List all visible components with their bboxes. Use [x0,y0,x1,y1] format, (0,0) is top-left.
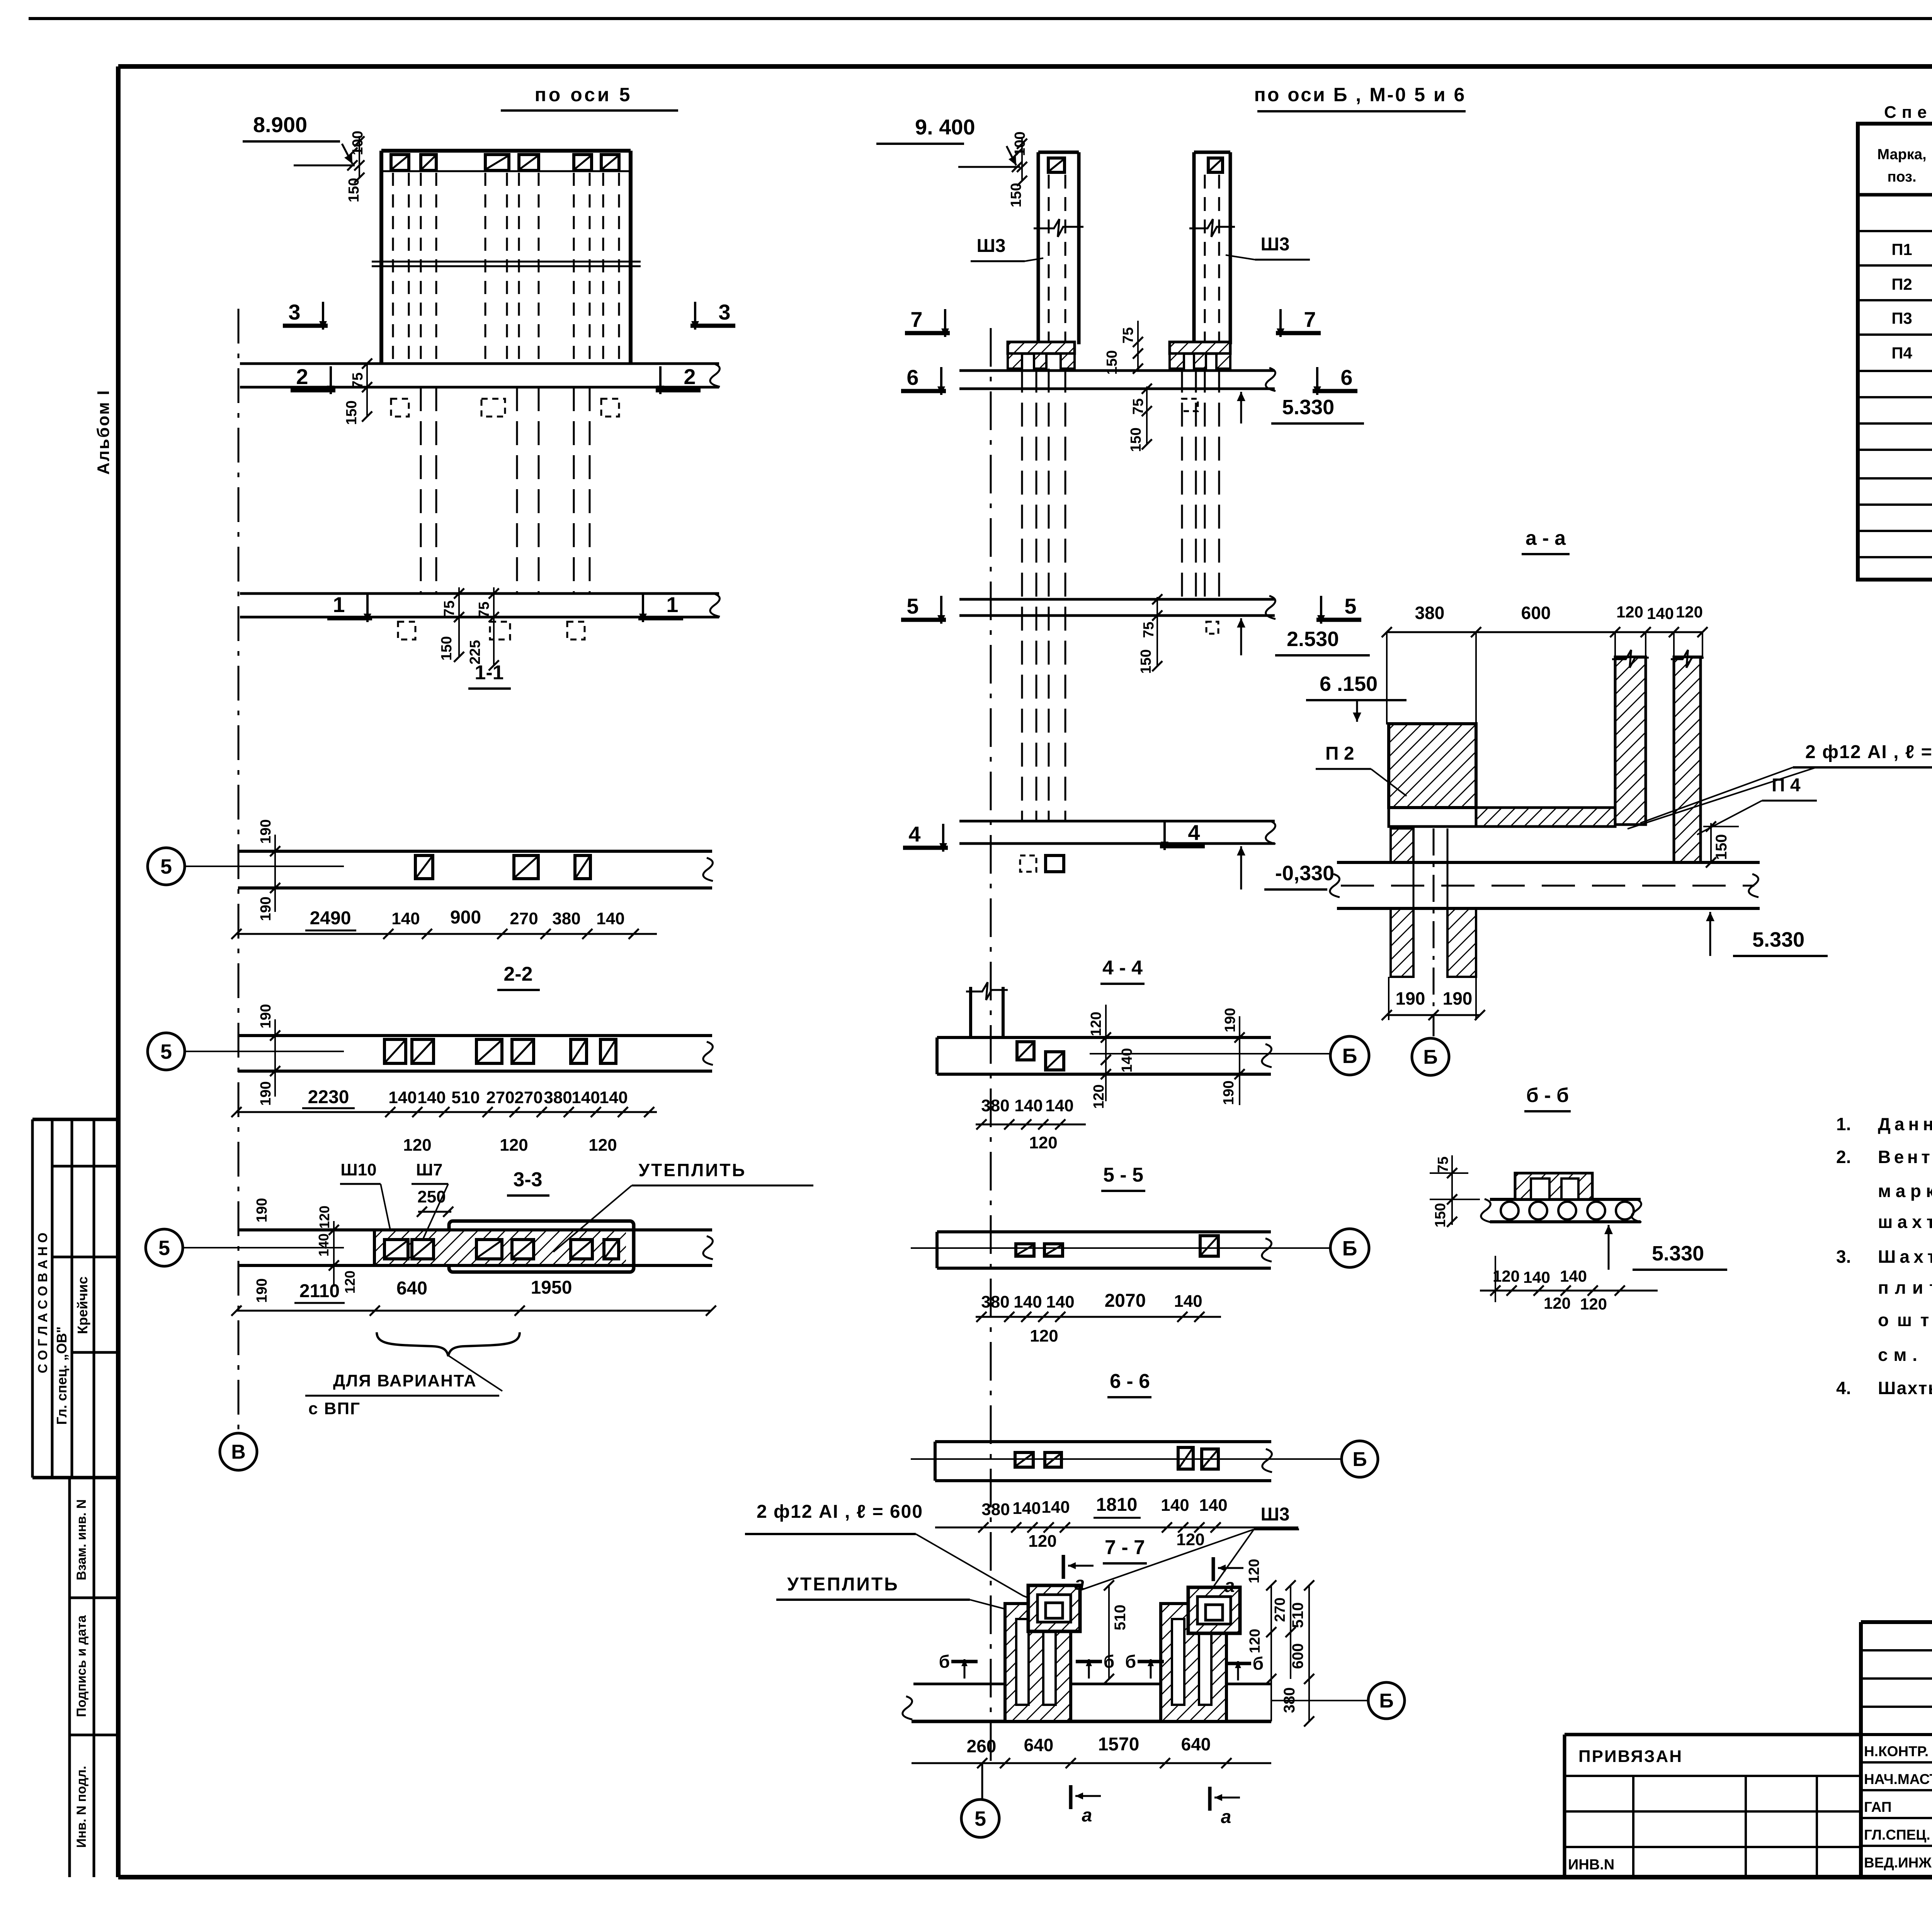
svg-text:900: 900 [450,907,481,928]
svg-text:ГАП: ГАП [1864,1799,1891,1815]
svg-text:Крейчис: Крейчис [75,1276,90,1334]
svg-text:б - б: б - б [1526,1084,1569,1107]
svg-text:510: 510 [1112,1605,1129,1631]
svg-text:2070: 2070 [1105,1291,1146,1311]
svg-text:140: 140 [1161,1496,1189,1515]
svg-text:9. 400: 9. 400 [915,115,975,139]
svg-text:120: 120 [588,1136,617,1155]
svg-text:5: 5 [158,1236,170,1260]
svg-text:7: 7 [1304,307,1316,332]
svg-text:Б: Б [1342,1237,1357,1260]
svg-text:4.: 4. [1836,1378,1851,1398]
svg-text:120: 120 [403,1136,431,1155]
svg-text:а - а: а - а [1526,527,1566,549]
svg-text:140: 140 [571,1088,600,1107]
svg-text:В: В [231,1441,246,1463]
svg-text:2: 2 [296,364,308,389]
svg-text:140: 140 [1012,1499,1041,1518]
svg-text:140: 140 [316,1233,332,1257]
svg-text:270: 270 [1272,1597,1288,1622]
svg-text:120: 120 [1246,1559,1262,1583]
svg-text:600: 600 [1521,603,1551,623]
svg-text:8.900: 8.900 [253,112,307,137]
svg-text:140: 140 [1045,1096,1073,1115]
svg-text:1-1: 1-1 [474,662,503,684]
svg-text:190: 190 [254,1278,270,1303]
svg-text:ПРИВЯЗАН: ПРИВЯЗАН [1578,1747,1683,1766]
svg-text:6: 6 [1340,365,1352,389]
svg-text:Б: Б [1379,1690,1393,1712]
svg-text:2 ф12 АI , ℓ =400: 2 ф12 АI , ℓ =400 [1805,742,1932,762]
svg-text:120: 120 [1544,1294,1571,1312]
svg-text:см. АС - 34 /.: см. АС - 34 /. [1878,1345,1932,1365]
svg-text:140: 140 [1523,1268,1550,1286]
svg-text:С О Г Л А С О В А Н О: С О Г Л А С О В А Н О [36,1233,50,1373]
svg-text:2490: 2490 [310,908,351,929]
svg-text:140: 140 [1014,1293,1042,1311]
svg-text:Спецификация элементов ч: Спецификация элементов чердака и фрагмен… [1884,103,1932,122]
svg-text:Ш10: Ш10 [340,1160,376,1179]
svg-text:120: 120 [1091,1084,1107,1109]
svg-text:2110: 2110 [299,1281,340,1301]
svg-text:Взам. инв. N: Взам. инв. N [74,1499,89,1580]
svg-text:по оси Б , М-0 5 и 6: по оси Б , М-0 5 и 6 [1254,84,1466,105]
svg-text:75: 75 [1141,622,1157,638]
svg-text:510: 510 [1289,1602,1306,1628]
svg-text:75: 75 [1120,327,1136,344]
svg-text:Ш3: Ш3 [977,236,1006,256]
svg-text:140: 140 [417,1088,446,1107]
svg-text:75: 75 [1435,1156,1451,1173]
svg-text:П1: П1 [1891,240,1912,259]
svg-text:2-2: 2-2 [503,963,532,985]
svg-text:380: 380 [552,909,580,928]
svg-text:Инв. N подл.: Инв. N подл. [74,1766,89,1848]
svg-text:140: 140 [1119,1048,1135,1072]
svg-text:140: 140 [1560,1267,1587,1285]
svg-text:Шахты Ш8 , Ш9 , Ш10 - для в: Шахты Ш8 , Ш9 , Ш10 - для варианта отопл… [1878,1378,1932,1398]
svg-text:120: 120 [1028,1532,1056,1551]
svg-text:a: a [1082,1805,1092,1826]
svg-text:150: 150 [344,400,360,425]
svg-text:П3: П3 [1891,309,1912,327]
svg-text:140: 140 [1046,1293,1074,1311]
svg-text:П2: П2 [1891,275,1912,293]
svg-text:140: 140 [1199,1496,1227,1515]
svg-text:140: 140 [1014,1096,1043,1115]
svg-text:УТЕПЛИТЬ: УТЕПЛИТЬ [787,1574,899,1595]
svg-text:ГЛ.СПЕЦ.: ГЛ.СПЕЦ. [1864,1827,1930,1843]
svg-text:Б: Б [1423,1046,1437,1068]
svg-text:380: 380 [1415,603,1445,623]
svg-text:600: 600 [1289,1643,1306,1669]
svg-text:140: 140 [1647,604,1674,622]
svg-text:75: 75 [350,372,366,389]
svg-text:a: a [1221,1807,1231,1827]
svg-text:120: 120 [316,1206,332,1229]
svg-text:190: 190 [1222,1008,1238,1032]
svg-text:2230: 2230 [308,1087,349,1107]
svg-text:640: 640 [1181,1734,1211,1754]
svg-text:4: 4 [908,822,920,846]
svg-text:250: 250 [417,1187,446,1206]
svg-text:120: 120 [1088,1012,1104,1036]
svg-text:2: 2 [684,364,696,389]
svg-text:120: 120 [500,1136,528,1155]
svg-text:150: 150 [1432,1203,1449,1227]
svg-text:190: 190 [258,819,274,844]
svg-text:2.: 2. [1836,1147,1851,1167]
svg-text:б: б [939,1651,950,1672]
svg-text:150: 150 [439,636,455,660]
svg-text:190: 190 [258,1081,274,1105]
svg-text:150: 150 [346,178,362,202]
svg-text:120: 120 [1029,1133,1057,1152]
svg-text:120: 120 [1676,603,1703,621]
svg-text:140: 140 [599,1088,628,1107]
svg-text:5: 5 [906,594,918,618]
svg-text:a: a [1225,1576,1235,1596]
svg-text:75: 75 [1130,398,1146,415]
svg-text:140: 140 [596,909,624,928]
svg-text:3: 3 [718,300,730,324]
svg-text:1: 1 [333,592,345,617]
svg-text:380: 380 [981,1096,1009,1115]
svg-text:a: a [1075,1573,1085,1594]
svg-text:640: 640 [1024,1735,1054,1755]
svg-text:Б: Б [1352,1448,1367,1471]
svg-text:6 .150: 6 .150 [1320,672,1378,696]
svg-text:1: 1 [666,592,678,617]
svg-text:1950: 1950 [531,1277,572,1298]
svg-text:Марка,: Марка, [1877,146,1926,163]
svg-text:5.330: 5.330 [1282,396,1334,419]
svg-text:Ш3: Ш3 [1261,1504,1290,1525]
svg-text:2.530: 2.530 [1287,628,1339,651]
svg-text:Б: Б [1342,1044,1357,1068]
svg-text:УТЕПЛИТЬ: УТЕПЛИТЬ [639,1160,747,1180]
svg-text:Гл. спец. „ОВ": Гл. спец. „ОВ" [54,1327,70,1425]
svg-text:225: 225 [467,640,483,664]
svg-text:5 - 5: 5 - 5 [1103,1164,1143,1186]
svg-text:6: 6 [906,365,918,389]
svg-text:5: 5 [160,1040,172,1063]
svg-text:5: 5 [160,855,172,878]
svg-text:3-3: 3-3 [513,1168,542,1191]
svg-text:б: б [1125,1651,1136,1672]
svg-text:120: 120 [1176,1530,1204,1549]
svg-text:1.: 1. [1836,1114,1851,1134]
svg-text:190: 190 [1396,988,1425,1009]
svg-text:120: 120 [1580,1295,1607,1313]
svg-text:640: 640 [396,1278,427,1299]
svg-text:260: 260 [967,1736,997,1756]
svg-text:оштукатурить по сетке /: оштукатурить по сетке / деталь утепления [1878,1310,1932,1330]
svg-text:Ш7: Ш7 [416,1160,443,1179]
svg-text:270: 270 [510,909,538,928]
svg-text:140: 140 [388,1088,417,1107]
svg-text:-0,330: -0,330 [1275,862,1334,885]
svg-text:120: 120 [1247,1629,1263,1653]
svg-text:Н.КОНТР.: Н.КОНТР. [1864,1743,1929,1759]
svg-text:ИНВ.N: ИНВ.N [1568,1857,1614,1873]
svg-text:ВЕД.ИНЖ: ВЕД.ИНЖ [1864,1855,1932,1871]
svg-text:поз.: поз. [1887,169,1916,185]
svg-text:120: 120 [1616,603,1643,621]
svg-text:ДЛЯ ВАРИАНТА: ДЛЯ ВАРИАНТА [333,1371,477,1390]
svg-text:140: 140 [1041,1498,1070,1517]
svg-text:П 4: П 4 [1772,775,1801,796]
svg-text:270: 270 [486,1088,514,1107]
svg-text:П4: П4 [1891,344,1912,362]
svg-text:1810: 1810 [1096,1495,1138,1515]
svg-text:6 - 6: 6 - 6 [1110,1370,1150,1393]
svg-text:4 - 4: 4 - 4 [1102,957,1143,979]
svg-text:140: 140 [391,909,420,928]
svg-text:150: 150 [1138,649,1154,673]
svg-text:5: 5 [1344,594,1356,618]
svg-text:150: 150 [1713,834,1730,860]
svg-text:75: 75 [476,602,492,618]
svg-text:140: 140 [1174,1292,1202,1311]
svg-text:75: 75 [441,600,457,617]
svg-text:190: 190 [1221,1080,1237,1105]
svg-text:5: 5 [975,1807,986,1830]
svg-text:1570: 1570 [1098,1734,1139,1755]
svg-text:Альбом I: Альбом I [94,389,113,474]
svg-text:380: 380 [981,1293,1009,1311]
svg-text:4: 4 [1188,820,1200,845]
svg-text:3.: 3. [1836,1247,1851,1267]
svg-text:120: 120 [1030,1327,1058,1345]
svg-text:Ш3: Ш3 [1261,234,1290,255]
svg-text:2 ф12 АI , ℓ = 600: 2 ф12 АI , ℓ = 600 [757,1502,923,1522]
svg-text:7 - 7: 7 - 7 [1105,1536,1145,1559]
svg-text:100: 100 [1012,131,1028,156]
svg-text:Подпись и дата: Подпись и дата [74,1615,89,1717]
svg-text:190: 190 [254,1198,270,1222]
svg-text:НАЧ.МАСТ: НАЧ.МАСТ [1864,1771,1932,1787]
svg-text:270: 270 [514,1088,543,1107]
svg-text:П 2: П 2 [1325,743,1354,764]
svg-text:120: 120 [1493,1267,1520,1285]
svg-text:190: 190 [258,1004,274,1028]
svg-text:б: б [1253,1653,1264,1673]
svg-text:3: 3 [288,300,300,324]
svg-text:380: 380 [544,1088,572,1107]
svg-text:510: 510 [451,1088,480,1107]
svg-text:7: 7 [910,307,922,332]
svg-text:по оси 5: по оси 5 [535,84,633,105]
svg-text:150: 150 [1008,183,1024,207]
svg-text:5.330: 5.330 [1652,1242,1704,1265]
svg-text:150: 150 [1104,350,1120,374]
svg-text:5.330: 5.330 [1752,928,1804,951]
svg-text:380: 380 [981,1500,1010,1519]
svg-text:120: 120 [342,1270,358,1294]
svg-text:с ВПГ: с ВПГ [308,1399,361,1418]
svg-text:190: 190 [1443,988,1473,1009]
svg-text:190: 190 [258,896,274,921]
